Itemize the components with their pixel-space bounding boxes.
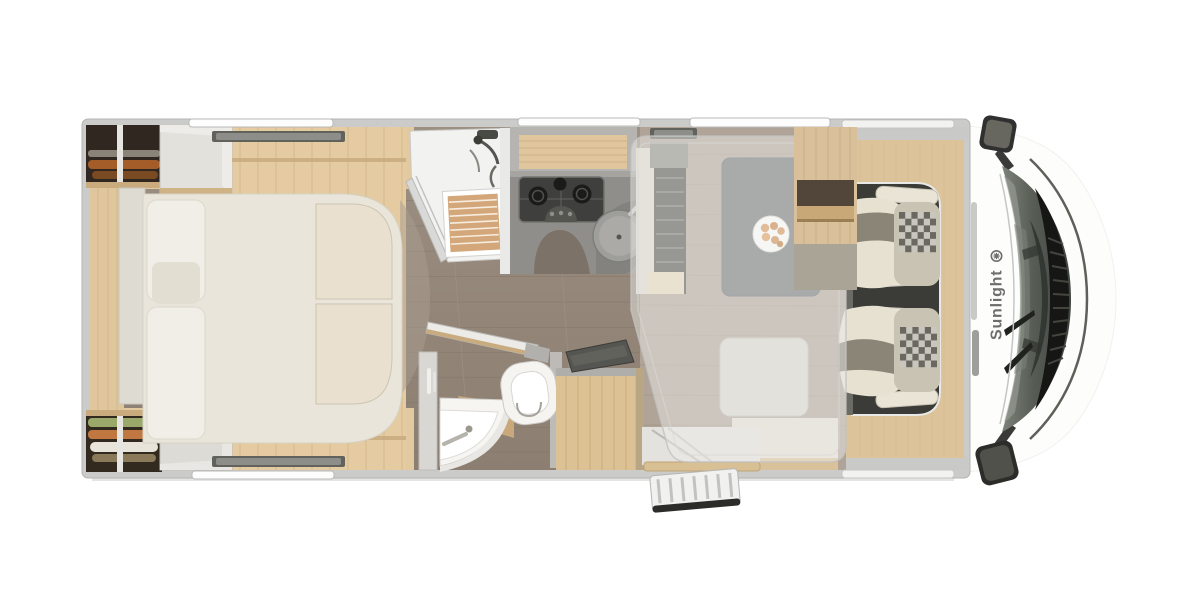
svg-text:Sunlight: Sunlight bbox=[989, 270, 1006, 340]
